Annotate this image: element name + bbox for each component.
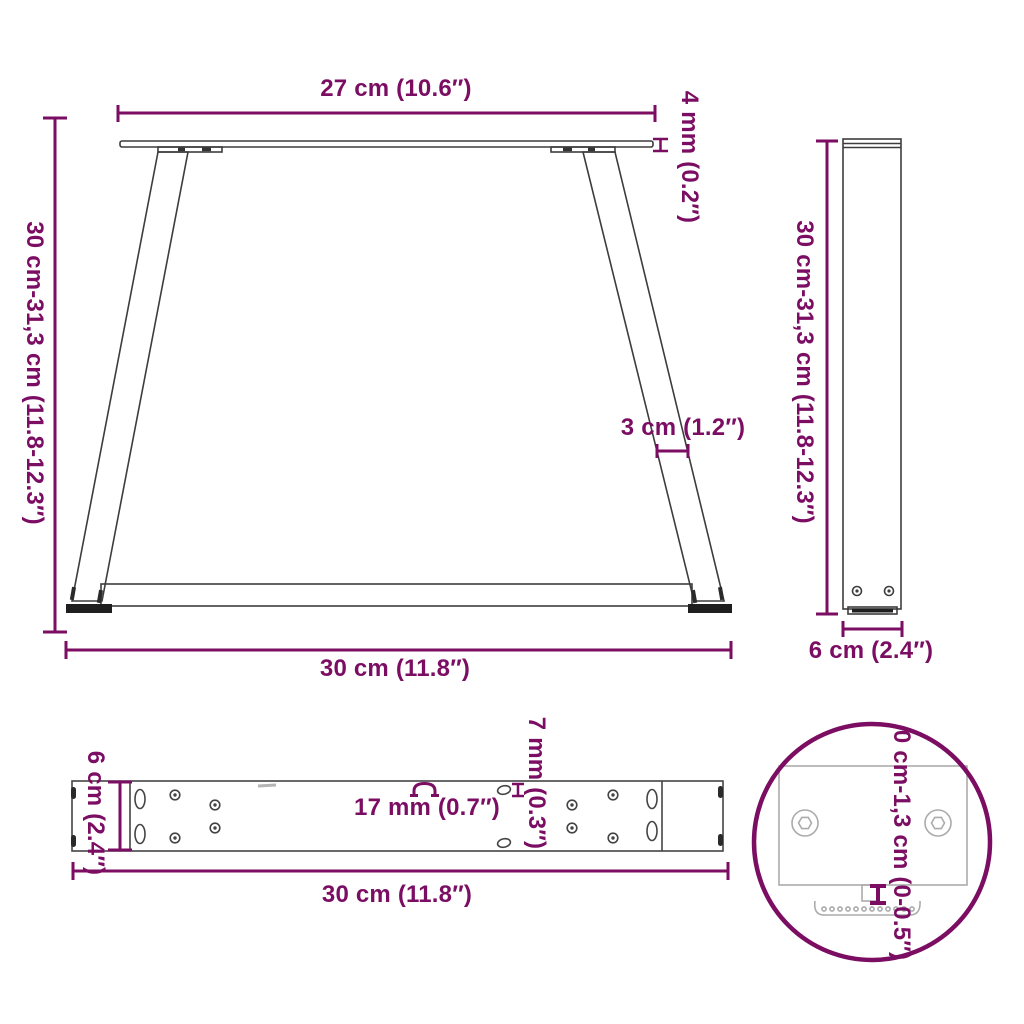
plate-small-slot (497, 838, 511, 849)
front-view-drawing (66, 141, 732, 613)
plate-slot (647, 822, 657, 841)
detail-adjustment-label: 0 cm-1,3 cm (0-0.5″) (889, 730, 913, 960)
front-left-leg (72, 152, 188, 601)
front-leg-width-marker (657, 444, 688, 458)
top-length-dimension (73, 862, 728, 880)
front-cross-bar (101, 584, 692, 606)
detail-screw-right (925, 810, 951, 836)
plate-slot (135, 825, 145, 844)
plate-slot (647, 790, 657, 809)
top-length-label: 30 cm (11.8″) (322, 883, 472, 907)
detail-screw-left (792, 810, 818, 836)
top-depth-dimension (108, 782, 132, 850)
top-slot-width-label: 17 mm (0.7″) (354, 796, 500, 820)
dimension-lines (43, 105, 990, 960)
detail-circle (754, 724, 990, 960)
top-depth-label: 6 cm (2.4″) (83, 751, 107, 875)
front-height-label: 30 cm-31,3 cm (11.8-12.3″) (22, 221, 46, 525)
top-hole-diameter-label: 7 mm (0.3″) (524, 717, 548, 849)
front-top-width-dimension (118, 105, 655, 122)
front-plate-thickness-marker (653, 139, 668, 151)
front-plate-thickness-label: 4 mm (0.2″) (677, 91, 701, 223)
front-bottom-width-label: 30 cm (11.8″) (320, 657, 470, 681)
side-height-label: 30 cm-31,3 cm (11.8-12.3″) (792, 220, 816, 524)
side-leg-body (843, 139, 901, 609)
side-height-dimension (816, 141, 838, 614)
detail-view-drawing (779, 766, 967, 915)
front-top-plate (120, 141, 653, 147)
plate-slot (135, 790, 145, 809)
dimension-diagram: 27 cm (10.6″) 4 mm (0.2″) 30 cm-31,3 cm … (0, 0, 1024, 1024)
side-depth-label: 6 cm (2.4″) (809, 639, 933, 663)
front-right-foot (688, 604, 732, 613)
side-view-drawing (843, 139, 901, 614)
detail-leg-bottom (779, 766, 967, 885)
front-left-foot (66, 604, 112, 613)
side-depth-dimension (843, 621, 902, 637)
front-top-width-label: 27 cm (10.6″) (320, 77, 472, 101)
diagram-linework (0, 0, 1024, 1024)
front-leg-width-label: 3 cm (1.2″) (621, 416, 745, 440)
